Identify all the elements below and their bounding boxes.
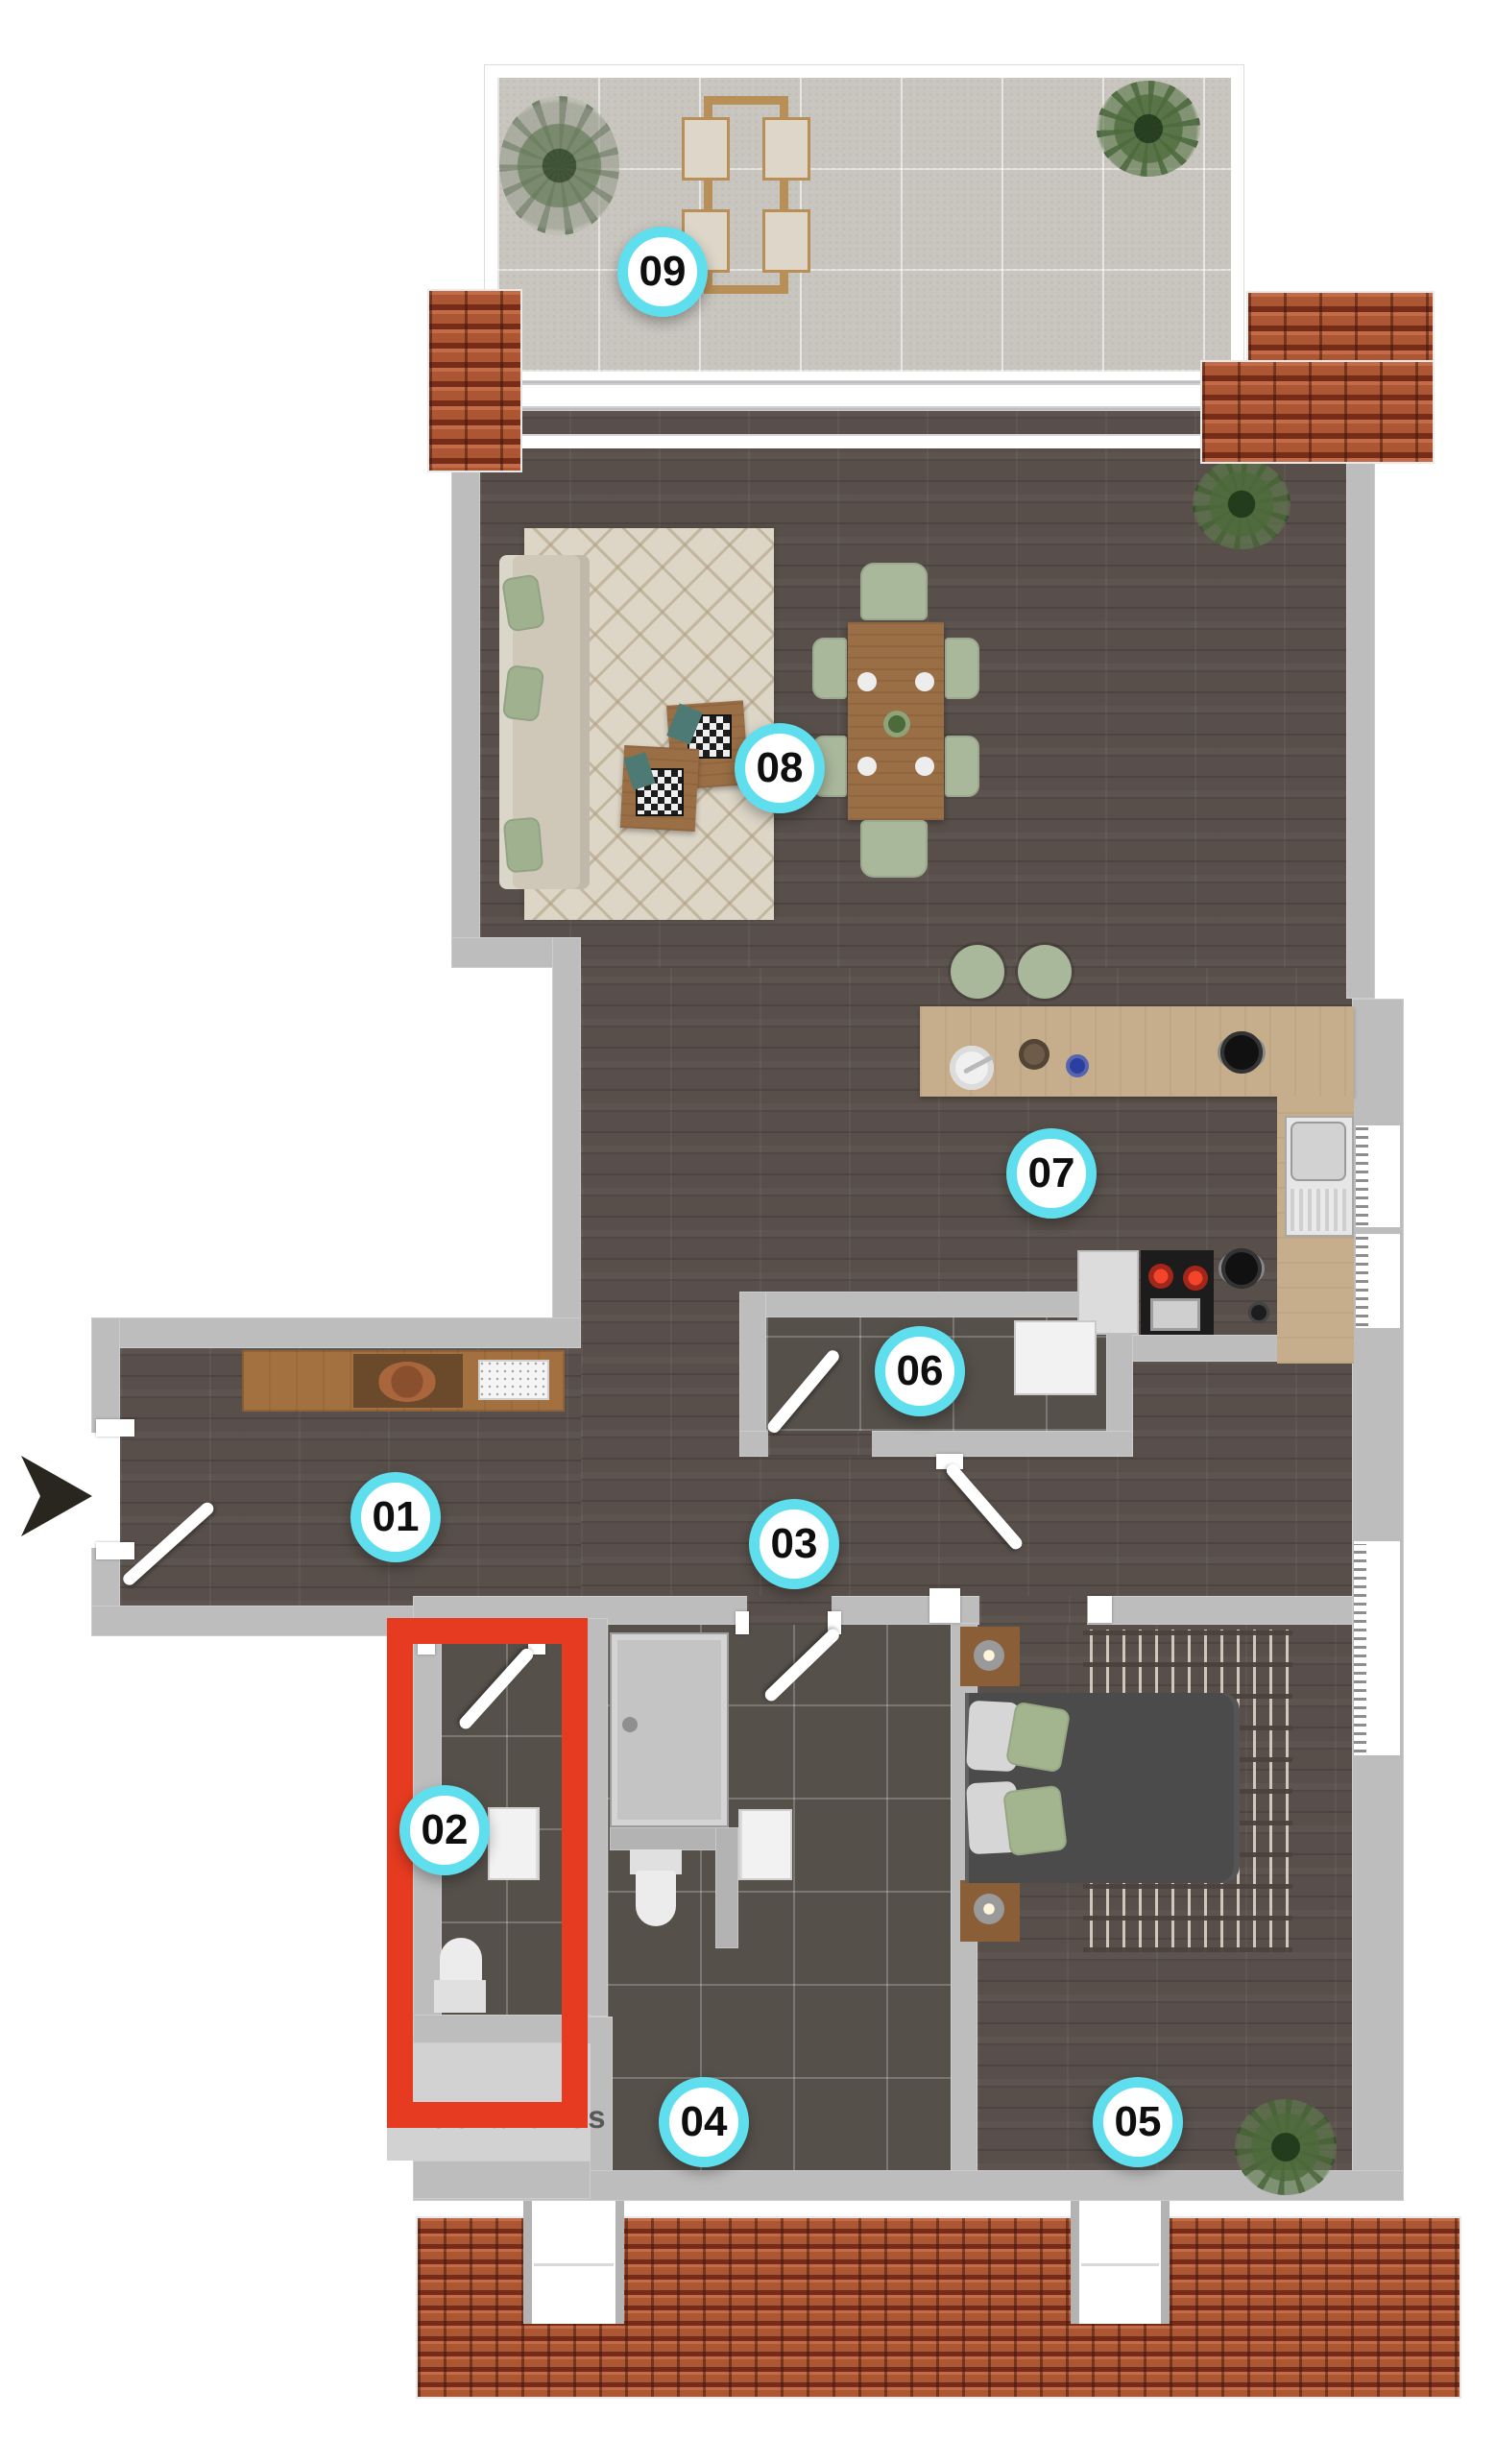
dining-chair xyxy=(945,638,979,699)
kitchen-window-lower-shutter xyxy=(1356,1236,1368,1326)
roof-top-right-upper xyxy=(1248,293,1433,364)
bar-stool xyxy=(1018,945,1072,999)
room-badge-label: 05 xyxy=(1115,2098,1162,2146)
bedroom-window-shutter xyxy=(1354,1544,1366,1752)
room-badge-label: 06 xyxy=(897,1347,944,1395)
roof-top-left xyxy=(429,291,520,471)
entry-jamb xyxy=(96,1419,134,1437)
sofa-pillow xyxy=(503,816,544,873)
room-badge-04[interactable]: 04 xyxy=(659,2077,749,2167)
entrance-arrow-icon xyxy=(21,1456,92,1536)
kettle xyxy=(1248,1302,1269,1323)
terrace-chair xyxy=(762,209,810,273)
bedroom-plant xyxy=(1235,2099,1337,2195)
room-badge-03[interactable]: 03 xyxy=(749,1499,839,1589)
door-opening-bath04 xyxy=(747,1596,832,1625)
wall-bath06-top xyxy=(739,1292,1133,1317)
plate xyxy=(857,757,877,776)
terrace-palm-plant-right xyxy=(1097,81,1200,177)
dining-chair xyxy=(860,563,928,620)
cooking-pot xyxy=(1221,1248,1262,1289)
room-badge-label: 08 xyxy=(757,744,804,792)
brown-bowl xyxy=(1019,1039,1050,1070)
door-jamb xyxy=(1088,1596,1112,1623)
dining-chair xyxy=(860,820,928,878)
living-room-plant xyxy=(1193,459,1291,549)
room-badge-label: 07 xyxy=(1028,1149,1075,1197)
stove-burner xyxy=(1148,1264,1173,1289)
entry-jamb xyxy=(96,1542,134,1559)
wall-hall-top xyxy=(91,1317,581,1348)
room-badge-05[interactable]: 05 xyxy=(1093,2077,1183,2167)
dining-chair xyxy=(945,736,979,797)
sink-drainboard xyxy=(1291,1189,1346,1231)
sofa-pillow xyxy=(502,664,545,722)
dormer-window xyxy=(523,2201,624,2324)
room02-highlight-rectangle[interactable] xyxy=(387,1618,588,2128)
room-badge-label: 04 xyxy=(681,2098,728,2146)
room-badge-02[interactable]: 02 xyxy=(399,1785,490,1875)
roof-top-right-lower xyxy=(1202,362,1433,462)
sliding-door-window-band xyxy=(496,383,1232,408)
terrace-chair xyxy=(682,117,730,181)
door-jamb xyxy=(929,1588,960,1623)
wall-left-mid xyxy=(552,937,581,1348)
washing-machine xyxy=(1014,1320,1097,1395)
wall-hall-bottom xyxy=(91,1606,422,1636)
nightstand-lamp xyxy=(974,1640,1004,1671)
shower-head xyxy=(622,1717,638,1732)
dormer-window-sill xyxy=(1081,2266,1159,2299)
nightstand-lamp xyxy=(974,1894,1004,1924)
bed-pillow-green xyxy=(1005,1701,1072,1773)
room-badge-label: 01 xyxy=(373,1493,420,1541)
bed-pillow-green xyxy=(1002,1785,1068,1857)
stove-burner xyxy=(1183,1266,1208,1291)
room-badge-label: 02 xyxy=(422,1806,469,1854)
table-centerpiece-plant xyxy=(883,711,910,737)
bar-stool xyxy=(951,945,1004,999)
door-jamb xyxy=(736,1611,749,1634)
room-badge-06[interactable]: 06 xyxy=(875,1326,965,1416)
cooking-pot xyxy=(1220,1031,1263,1074)
plate xyxy=(915,757,934,776)
room-badge-01[interactable]: 01 xyxy=(350,1472,441,1562)
terrace-palm-plant-left xyxy=(499,96,619,235)
stove-tray xyxy=(1150,1298,1200,1331)
tray xyxy=(478,1360,549,1400)
room-badge-07[interactable]: 07 xyxy=(1006,1128,1097,1219)
landing-wall xyxy=(413,2161,591,2199)
dormer-window xyxy=(1071,2201,1170,2324)
plate xyxy=(857,672,877,691)
kitchen-window-upper-shutter xyxy=(1356,1127,1368,1225)
room-badge-label: 03 xyxy=(771,1520,818,1568)
plate xyxy=(915,672,934,691)
bath04-partition-v xyxy=(715,1827,738,1948)
door-opening-bath06 xyxy=(768,1431,872,1457)
dining-chair xyxy=(812,638,847,699)
door-opening-bedroom xyxy=(979,1596,1087,1625)
blue-bowl xyxy=(1066,1054,1089,1077)
room-badge-09[interactable]: 09 xyxy=(617,227,708,317)
bath04-vanity xyxy=(738,1809,792,1880)
bath04-toilet-bowl xyxy=(636,1871,676,1926)
sink-basin xyxy=(1291,1122,1346,1181)
wall-right-living xyxy=(1346,411,1375,999)
entry-door-opening xyxy=(91,1433,120,1548)
dormer-window-sill xyxy=(534,2266,614,2299)
room-badge-08[interactable]: 08 xyxy=(735,723,825,813)
terrace-chair xyxy=(762,117,810,181)
decorative-bowl xyxy=(378,1362,436,1402)
room-badge-label: 09 xyxy=(639,248,687,296)
floor-plan: MioGrandhos 01 02 03 04 05 06 07 08 09 xyxy=(0,0,1496,2464)
